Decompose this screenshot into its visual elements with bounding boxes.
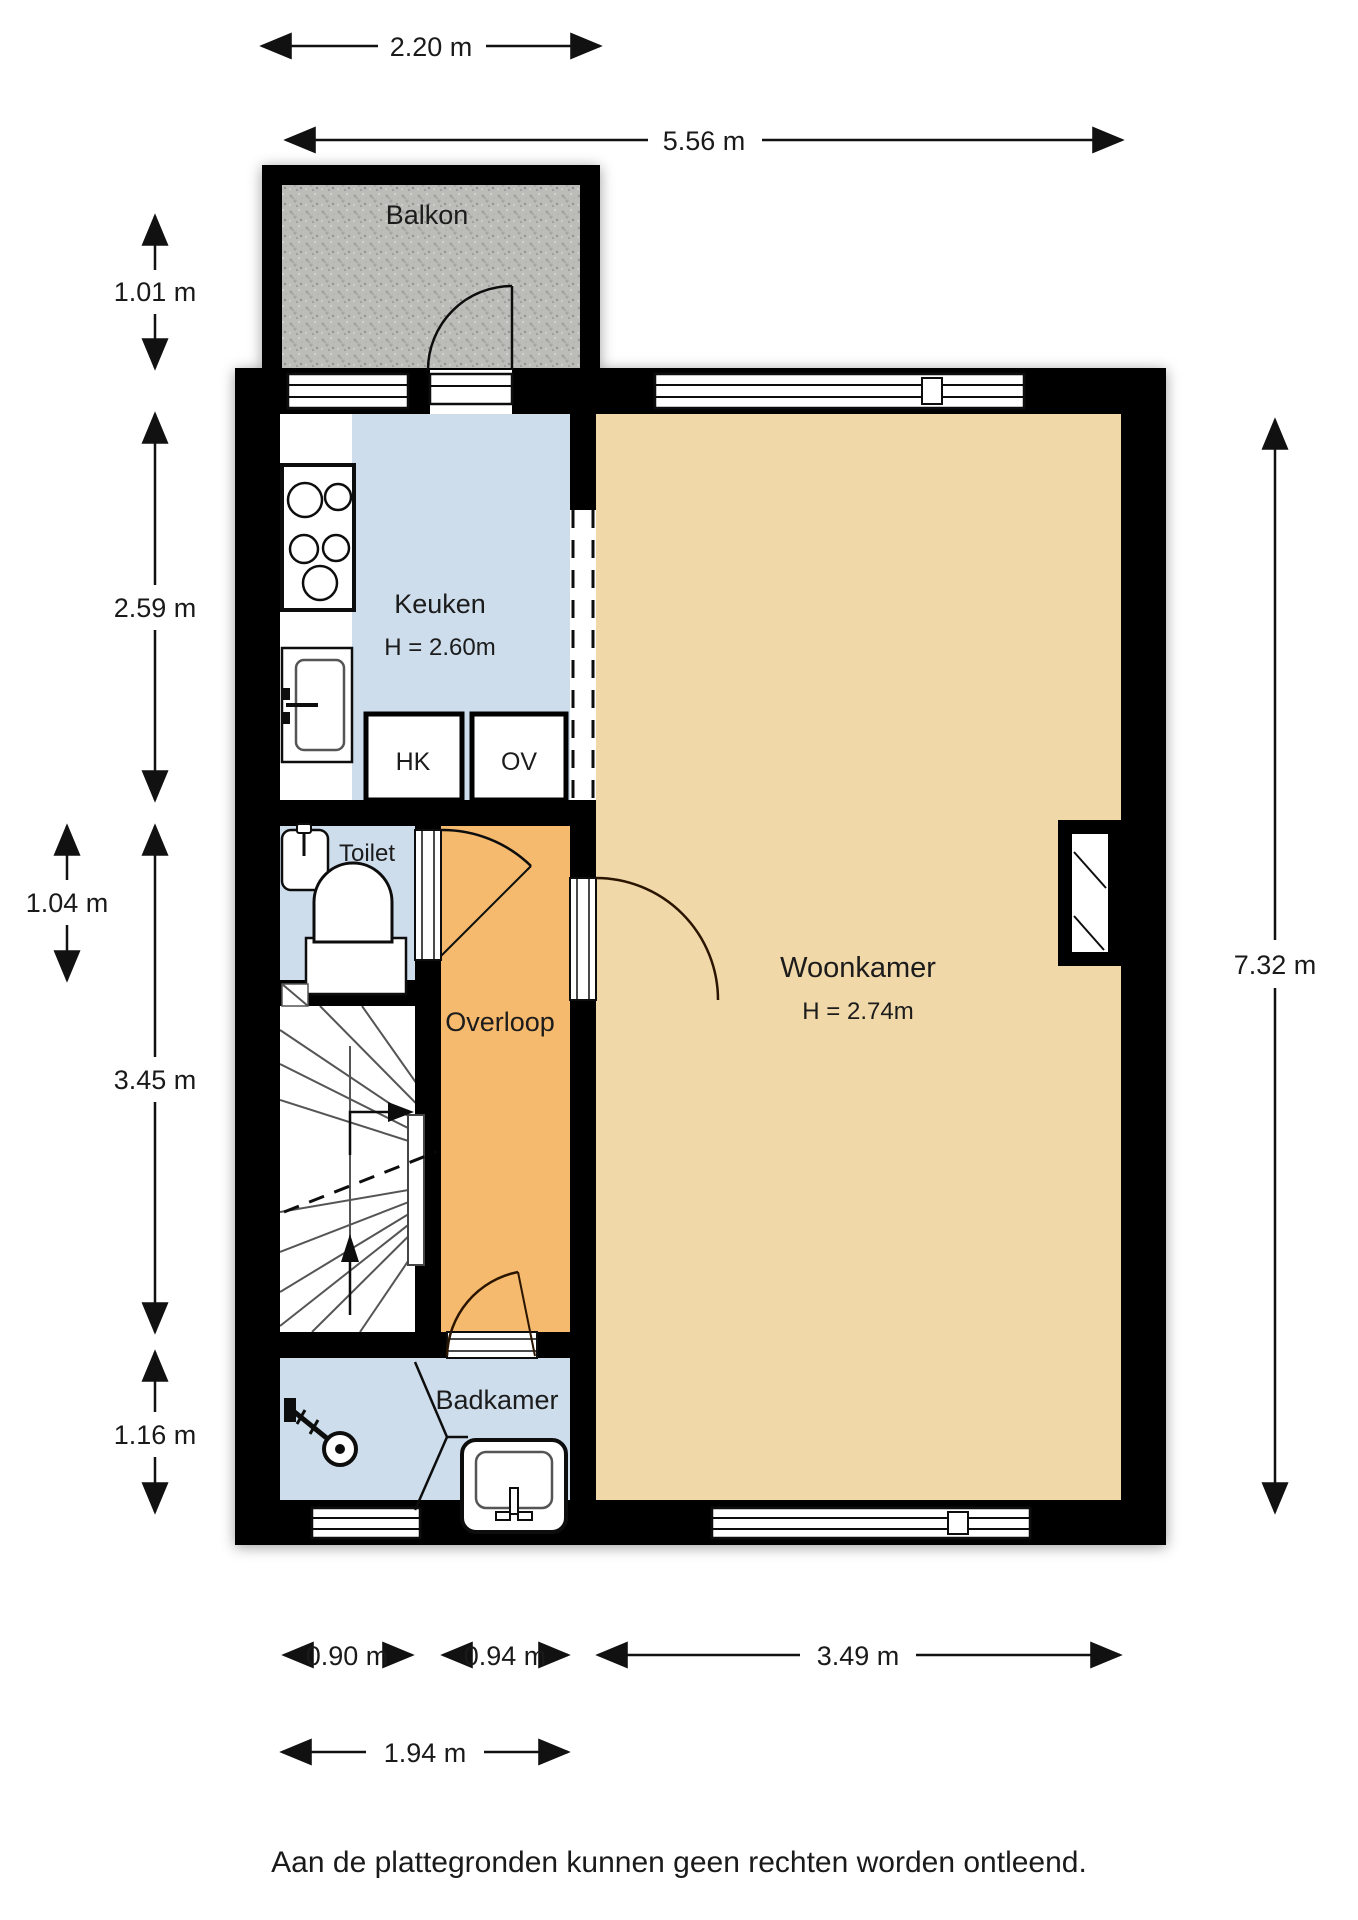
living-window-bottom-icon [712,1508,1030,1538]
dim-bottom-hall: 0.94 m [443,1641,568,1671]
disclaimer-text: Aan de plattegronden kunnen geen rechten… [271,1846,1087,1879]
svg-text:3.45 m: 3.45 m [114,1065,197,1095]
bathroom-window-icon [312,1508,420,1538]
dim-left-stairs: 3.45 m [114,826,197,1332]
dim-bottom-living: 3.49 m [598,1641,1120,1671]
room-label-toilet: Toilet [339,840,395,867]
svg-text:1.16 m: 1.16 m [114,1420,197,1450]
svg-text:5.56 m: 5.56 m [663,126,746,156]
svg-text:1.94 m: 1.94 m [384,1738,467,1768]
svg-text:2.59 m: 2.59 m [114,593,197,623]
svg-text:0.94 m: 0.94 m [464,1641,547,1671]
dim-right-total: 7.32 m [1234,420,1317,1512]
closet-label-ov: OV [501,748,537,776]
svg-text:2.20 m: 2.20 m [390,32,473,62]
dim-left-balcony: 1.01 m [114,216,197,368]
room-height-woonkamer: H = 2.74m [802,998,913,1025]
room-label-woonkamer: Woonkamer [780,952,936,984]
kitchen-sink-icon [282,648,352,762]
svg-text:0.90 m: 0.90 m [306,1641,389,1671]
living-window-top-icon [655,374,1024,408]
stairs-corner-hatch [282,984,308,1006]
dim-left-bathroom: 1.16 m [114,1352,197,1512]
open-connection-dashed [570,510,596,800]
floorplan-canvas: Balkon Keuken H = 2.60m HK OV Toilet Ove… [0,0,1358,1920]
bathroom-sink-icon [462,1440,566,1532]
shaft-niche-icon [1072,834,1108,952]
closet-label-hk: HK [396,748,431,776]
svg-text:7.32 m: 7.32 m [1234,950,1317,980]
dim-bottom-left-total: 1.94 m [282,1738,568,1768]
room-overloop-floor [441,826,570,1332]
stairs-newel [408,1115,424,1265]
stove-icon [282,465,354,610]
svg-text:1.04 m: 1.04 m [26,888,109,918]
dim-top-total: 5.56 m [286,126,1122,156]
room-height-keuken: H = 2.60m [384,634,495,661]
floorplan-page: Balkon Keuken H = 2.60m HK OV Toilet Ove… [0,0,1358,1920]
svg-text:3.49 m: 3.49 m [817,1641,900,1671]
dim-left-kitchen: 2.59 m [114,414,197,800]
dim-top-balcony: 2.20 m [262,32,600,62]
kitchen-window-icon [288,374,408,408]
dim-left-toilet: 1.04 m [26,826,109,980]
room-label-balkon: Balkon [386,200,469,230]
room-label-badkamer: Badkamer [435,1385,558,1415]
building: Balkon Keuken H = 2.60m HK OV Toilet Ove… [235,165,1166,1545]
room-label-overloop: Overloop [445,1007,555,1037]
dim-bottom-bathroom: 0.90 m [284,1641,412,1671]
svg-text:1.01 m: 1.01 m [114,277,197,307]
room-label-keuken: Keuken [394,589,486,619]
